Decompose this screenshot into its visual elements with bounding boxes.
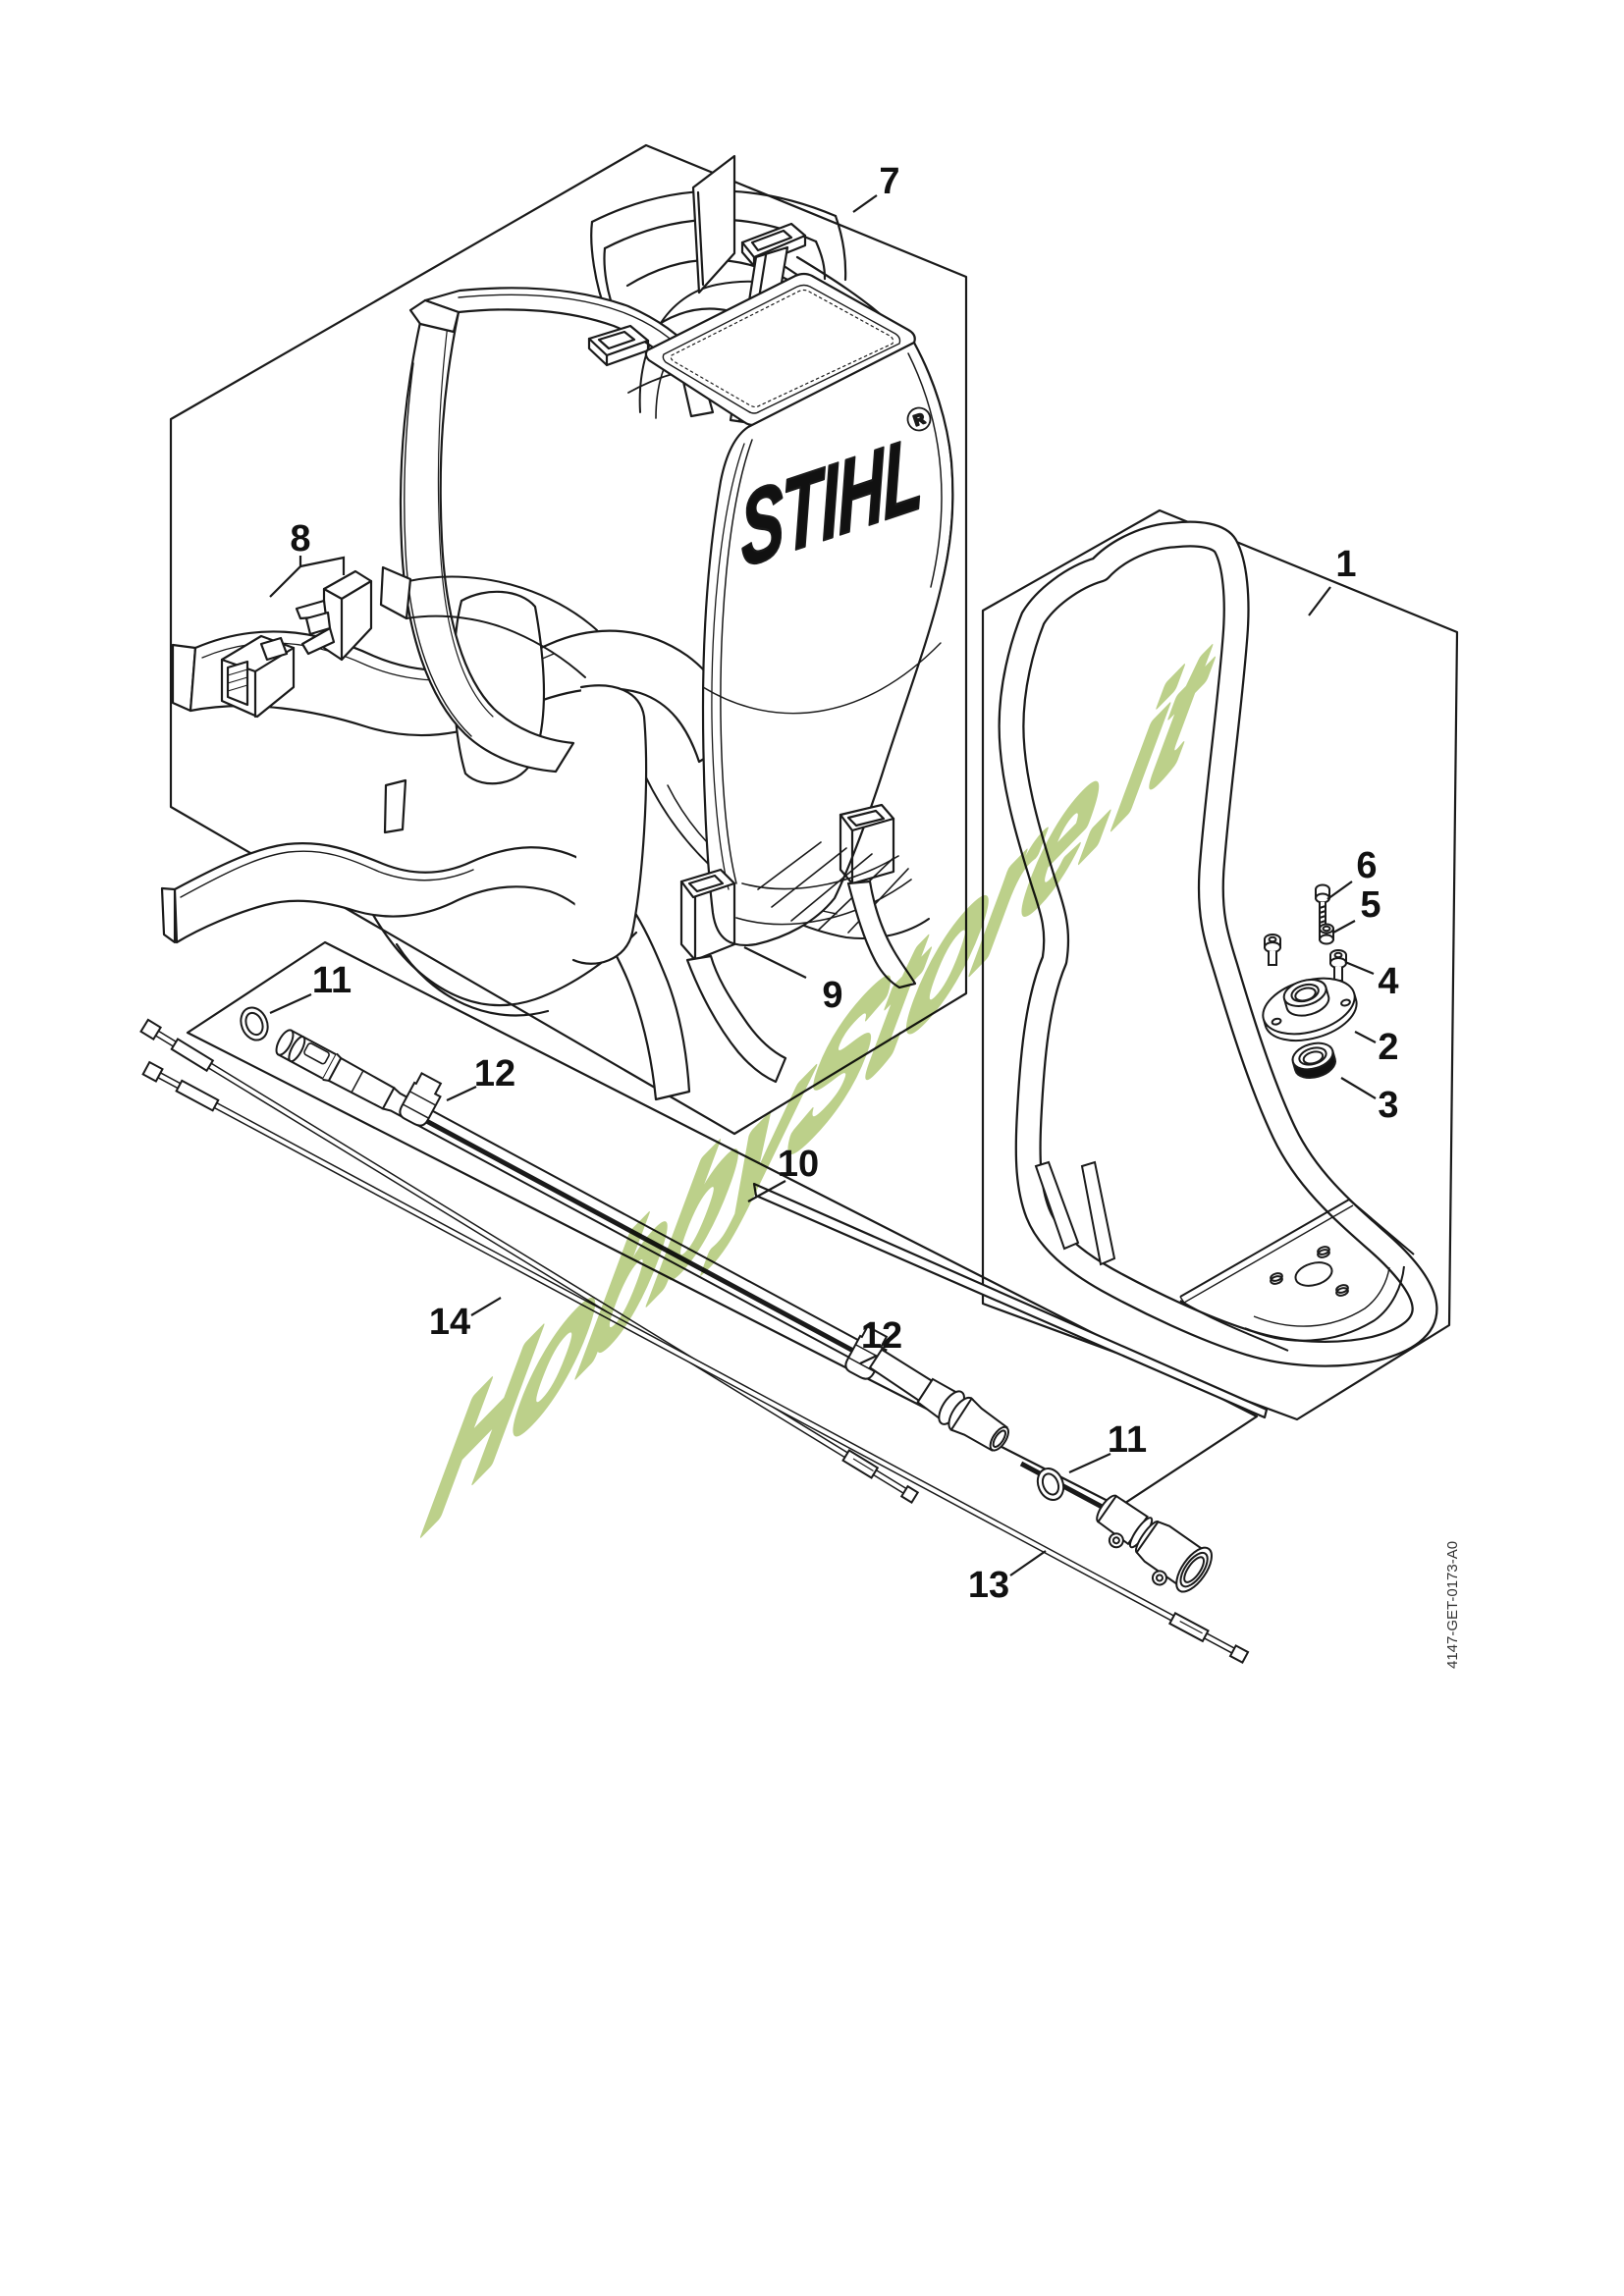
svg-text:6: 6 [1356, 845, 1377, 886]
svg-text:8: 8 [290, 518, 310, 560]
svg-text:13: 13 [968, 1565, 1009, 1606]
svg-text:14: 14 [429, 1302, 470, 1343]
svg-text:1: 1 [1335, 544, 1356, 585]
svg-text:11: 11 [312, 960, 352, 1001]
svg-text:2: 2 [1378, 1027, 1398, 1068]
svg-text:7: 7 [879, 161, 899, 202]
svg-text:5: 5 [1360, 884, 1380, 926]
svg-text:4: 4 [1378, 961, 1398, 1002]
svg-text:12: 12 [861, 1315, 902, 1357]
svg-text:4147-GET-0173-A0: 4147-GET-0173-A0 [1444, 1541, 1461, 1669]
svg-text:11: 11 [1108, 1419, 1147, 1461]
svg-text:3: 3 [1378, 1085, 1398, 1126]
svg-text:12: 12 [474, 1053, 515, 1095]
